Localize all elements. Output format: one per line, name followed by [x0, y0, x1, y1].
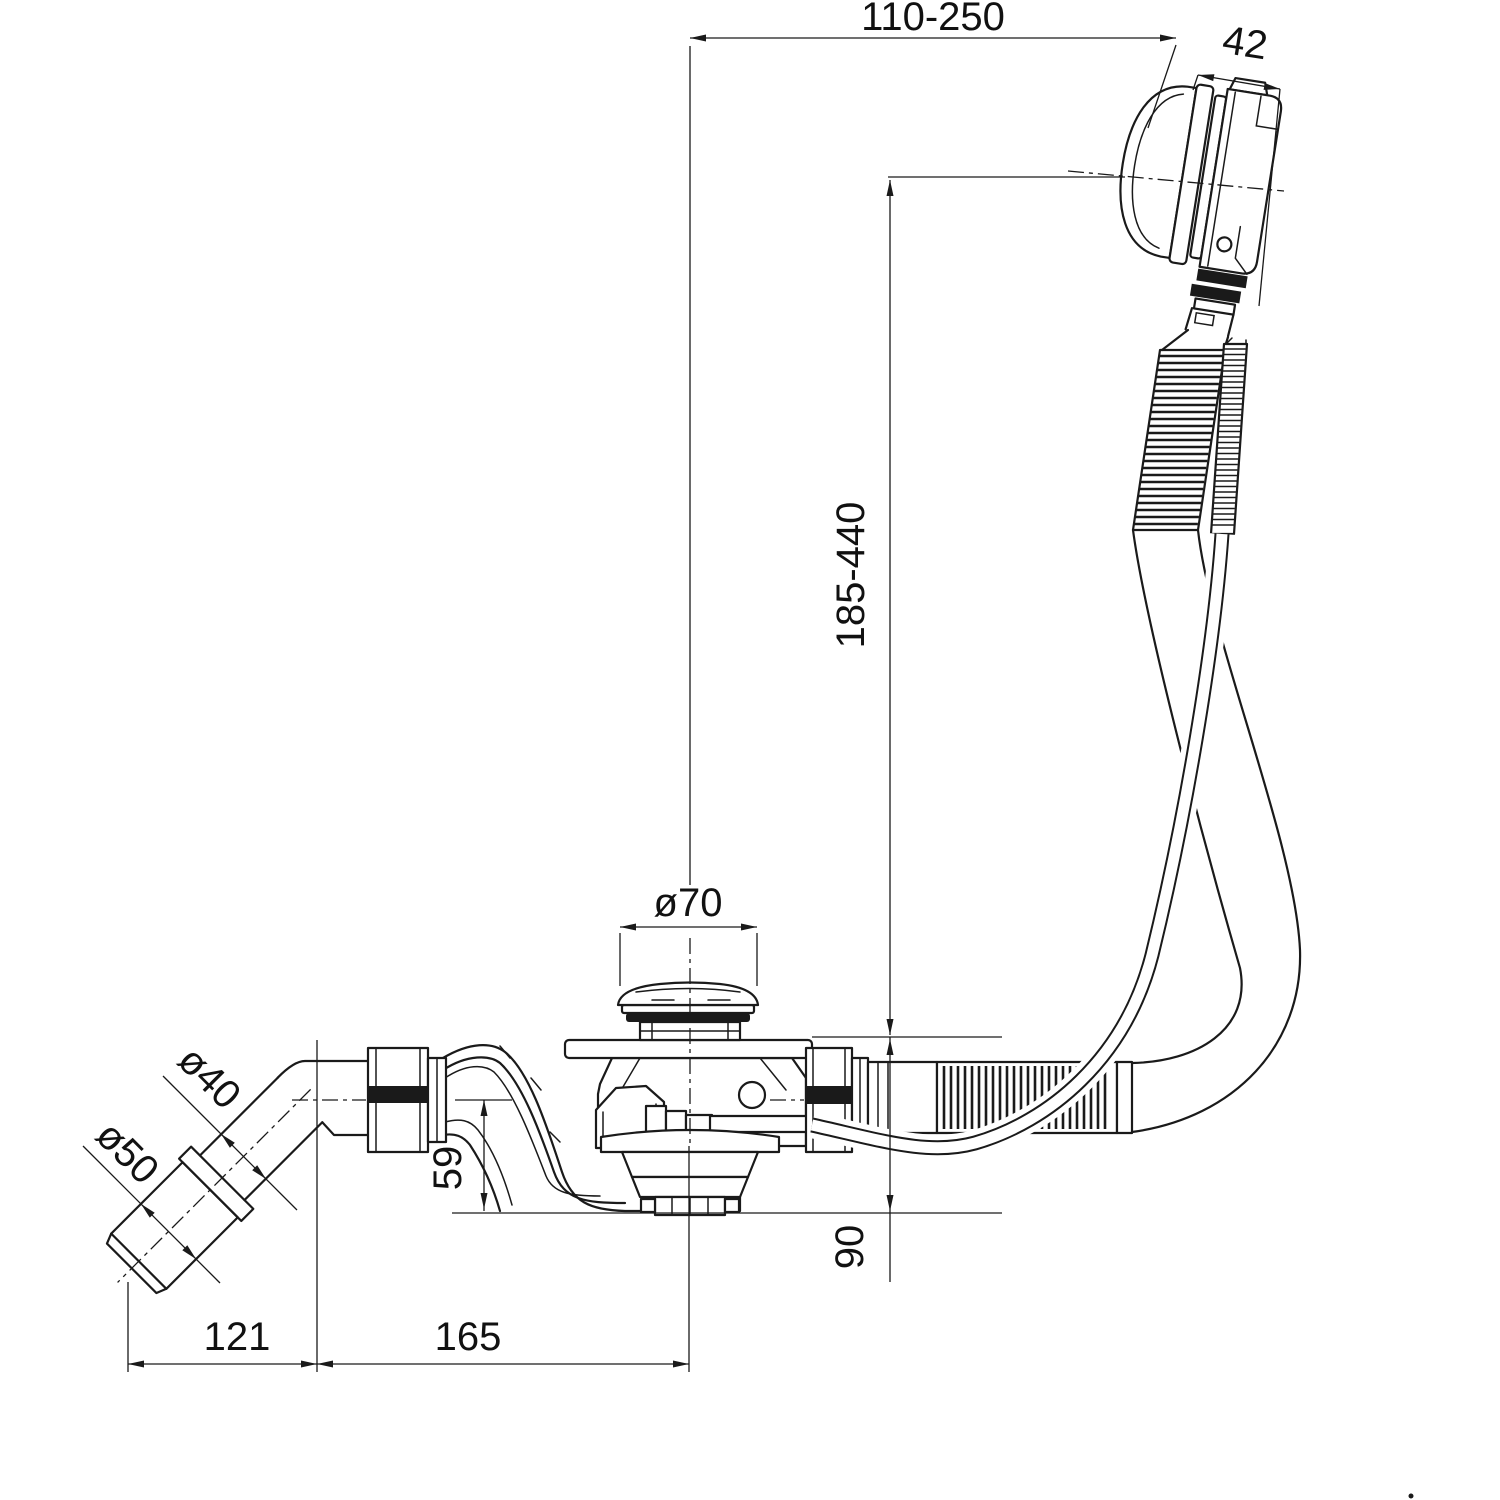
control-cable: [812, 534, 1222, 1148]
dim-plug-diameter: ø70: [620, 881, 757, 986]
dim-overflow-depth-label: 42: [1220, 18, 1271, 68]
drawing-canvas: 110-250 42 185-440 90: [0, 0, 1500, 1500]
dim-socket-diameter-label: ø50: [87, 1113, 167, 1193]
corner-artifact-dot: [1409, 1494, 1414, 1499]
plug-dome: [618, 983, 758, 1006]
dim-trap-length-label: 165: [435, 1315, 502, 1359]
hose-collar: [1117, 1062, 1132, 1133]
waste-flange: [565, 1040, 812, 1058]
dim-plug-diameter-label: ø70: [654, 881, 723, 925]
plug-seal-ring: [626, 1013, 750, 1022]
elbow-compression-nut: [368, 1048, 446, 1152]
dim-waste-height-label: 90: [828, 1225, 872, 1270]
cable-rod: [710, 1116, 814, 1132]
dim-overflow-height: 185-440: [829, 177, 1125, 1035]
tee-screw-hole: [739, 1082, 765, 1108]
cable-pivot: [1216, 236, 1232, 252]
dim-top-span-label: 110-250: [861, 0, 1005, 39]
dim-overflow-height-label: 185-440: [829, 502, 873, 649]
popup-waste-plug: [618, 983, 758, 1041]
elbow-centerline: [118, 1089, 311, 1282]
dim-trap-depth-label: 59: [426, 1146, 470, 1191]
dim-elbow-offset-label: 121: [204, 1315, 271, 1359]
overflow-knob-assembly: [1099, 63, 1285, 339]
dim-pipe-diameter-label: ø40: [169, 1038, 249, 1118]
dim-socket-diameter: ø50: [83, 1113, 220, 1283]
dim-top-span: 110-250: [690, 0, 1176, 885]
